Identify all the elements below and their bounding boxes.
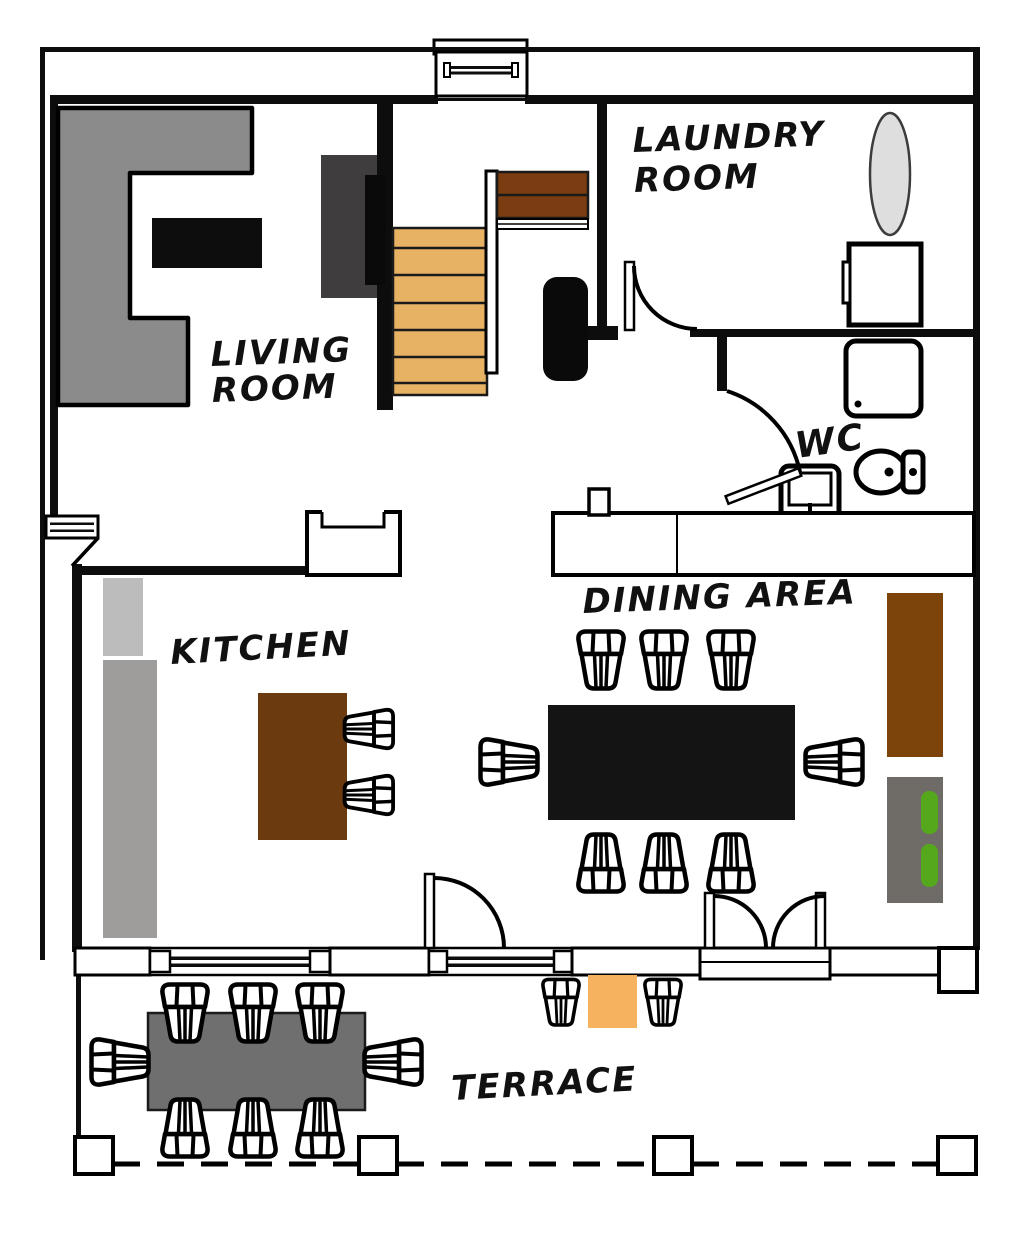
dining-chair bbox=[806, 739, 863, 784]
terrace-west-edge bbox=[76, 975, 81, 1138]
terrace-chair bbox=[297, 1100, 342, 1157]
south-wall-segment bbox=[572, 948, 700, 975]
french-door-leaf-right bbox=[816, 893, 825, 948]
south-window-2 bbox=[429, 948, 572, 975]
front-door-cap-left bbox=[444, 63, 450, 77]
bar-stool bbox=[345, 776, 393, 814]
dining-table bbox=[548, 705, 795, 820]
terrace-post bbox=[75, 1137, 113, 1174]
terrace-post bbox=[359, 1137, 397, 1174]
terrace-chair bbox=[162, 985, 207, 1042]
terrace-post bbox=[938, 1137, 976, 1174]
front-door-sill bbox=[438, 98, 525, 101]
dining-chair bbox=[578, 835, 623, 892]
top-wall-right bbox=[525, 95, 975, 104]
kitchen-island bbox=[258, 693, 347, 840]
french-door-threshold bbox=[700, 948, 830, 979]
terrace-post bbox=[654, 1137, 692, 1174]
kitchen-door-leaf bbox=[425, 874, 434, 948]
corner-step bbox=[939, 948, 977, 992]
washing-machine bbox=[849, 244, 921, 325]
front-door bbox=[436, 52, 527, 96]
laundry-room-label-line1: LAUNDRY bbox=[632, 114, 827, 161]
dining-chair bbox=[708, 835, 753, 892]
dining-chair bbox=[708, 632, 753, 689]
coffee-table bbox=[152, 218, 262, 268]
front-door-glazing-1 bbox=[444, 66, 519, 69]
terrace-chair bbox=[162, 1100, 207, 1157]
wall-band bbox=[553, 513, 974, 575]
bar-stool bbox=[345, 710, 393, 748]
terrace-chair bbox=[230, 1100, 275, 1157]
outer-wall-left bbox=[40, 47, 45, 960]
plant bbox=[921, 844, 938, 887]
hall-laundry-wall-foot bbox=[588, 326, 618, 340]
living-room-label: LIVING ROOM bbox=[210, 330, 354, 411]
terrace-chair bbox=[230, 985, 275, 1042]
tv bbox=[365, 175, 386, 285]
plant bbox=[921, 791, 938, 834]
floor-plan: LIVING ROOM LAUNDRY ROOM WC KITCHEN DINI… bbox=[0, 0, 1024, 1241]
laundry-room-label-line2: ROOM bbox=[633, 157, 760, 201]
dining-chair bbox=[481, 739, 538, 784]
wall-chimney bbox=[589, 489, 609, 515]
laundry-basket bbox=[870, 113, 910, 235]
kitchen-counter-upper bbox=[103, 578, 143, 656]
french-door-leaf-left bbox=[705, 893, 714, 948]
front-door-cap-right bbox=[512, 63, 518, 77]
hall-laundry-wall bbox=[597, 95, 607, 327]
bistro-chair bbox=[645, 979, 681, 1025]
left-window-glazing-2 bbox=[50, 530, 94, 533]
bistro-chair bbox=[543, 979, 579, 1025]
stairs-lower-flight bbox=[393, 228, 487, 395]
front-door-glazing-2 bbox=[444, 72, 519, 75]
kitchen-north-wall bbox=[72, 566, 307, 575]
toilet-flush bbox=[885, 468, 894, 477]
wc-west-wall bbox=[717, 329, 727, 391]
washing-machine-door bbox=[843, 262, 850, 303]
terrace-chair bbox=[297, 985, 342, 1042]
wall-stub-notch-fill bbox=[322, 509, 384, 525]
laundry-wc-wall bbox=[690, 329, 975, 337]
south-wall-segment bbox=[330, 948, 429, 975]
terrace-chair bbox=[92, 1039, 149, 1084]
sideboard bbox=[887, 593, 943, 757]
south-wall-segment bbox=[830, 948, 939, 975]
outer-wall-right bbox=[973, 47, 980, 950]
dining-chair bbox=[641, 632, 686, 689]
south-wall-segment bbox=[75, 948, 150, 975]
dining-chair bbox=[578, 632, 623, 689]
stair-side-wall bbox=[486, 171, 497, 373]
hall-bench bbox=[543, 277, 588, 381]
living-room-label-line2: ROOM bbox=[211, 367, 338, 411]
left-window-glazing-1 bbox=[50, 523, 94, 526]
kitchen-counter-lower bbox=[103, 660, 157, 938]
terrace-chair bbox=[365, 1039, 422, 1084]
kitchen-west-wall bbox=[72, 564, 82, 952]
bistro-table bbox=[588, 975, 637, 1028]
left-window-frame bbox=[46, 516, 98, 538]
shower-drain bbox=[855, 401, 862, 408]
dining-chair bbox=[641, 835, 686, 892]
south-window-1 bbox=[150, 948, 330, 975]
toilet-tank-dot bbox=[909, 468, 917, 476]
